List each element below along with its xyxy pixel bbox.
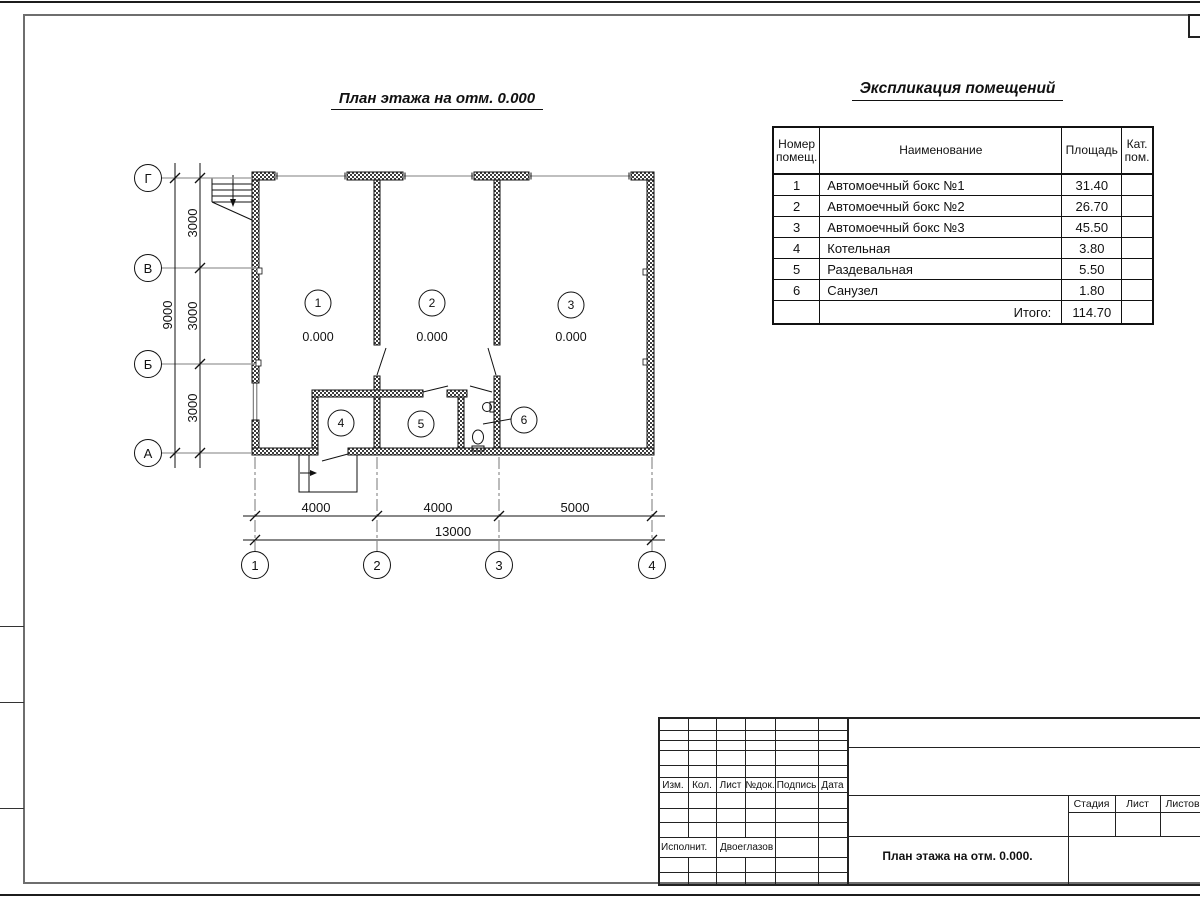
room-cat-cell bbox=[1122, 280, 1153, 301]
total-label: Итого: bbox=[820, 301, 1062, 325]
door-leaf bbox=[377, 348, 386, 375]
col-header-num: Номер помещ. bbox=[773, 127, 820, 174]
room-number: 1 bbox=[315, 296, 322, 310]
wall-axis-ticks bbox=[256, 268, 647, 366]
sanitary-fixtures bbox=[472, 402, 494, 451]
dimension-label: 13000 bbox=[435, 524, 471, 539]
partition-wall bbox=[494, 376, 500, 448]
dimension-label: 3000 bbox=[185, 394, 200, 423]
elevation-label: 0.000 bbox=[555, 330, 586, 344]
stair-direction-arrow bbox=[230, 199, 236, 207]
wall bbox=[347, 172, 403, 180]
entrance-arrow bbox=[310, 470, 317, 476]
room-name-cell: Раздевальная bbox=[820, 259, 1062, 280]
tb-col-kol: Кол. bbox=[688, 779, 716, 792]
room-cat-cell bbox=[1122, 196, 1153, 217]
room-num-cell: 3 bbox=[773, 217, 820, 238]
room-name-cell: Санузел bbox=[820, 280, 1062, 301]
room-bubbles bbox=[305, 290, 584, 437]
col-header-name: Наименование bbox=[820, 127, 1062, 174]
room-name-cell: Автомоечный бокс №1 bbox=[820, 174, 1062, 196]
total-value: 114.70 bbox=[1062, 301, 1122, 325]
room-number: 2 bbox=[429, 296, 436, 310]
axis-letter: В bbox=[144, 261, 153, 276]
wall bbox=[348, 448, 654, 455]
room-cat-cell bbox=[1122, 259, 1153, 280]
door-leaf bbox=[423, 386, 448, 392]
room-cat-cell bbox=[1122, 217, 1153, 238]
dimension-label: 5000 bbox=[561, 500, 590, 515]
room-name-cell: Котельная bbox=[820, 238, 1062, 259]
axis-bubbles-left bbox=[135, 165, 162, 467]
executor-label: Исполнит. bbox=[661, 841, 707, 854]
room-number: 4 bbox=[338, 416, 345, 430]
explication-table: Номер помещ. Наименование Площадь Кат. п… bbox=[772, 126, 1154, 325]
table-total-row: Итого: 114.70 bbox=[773, 301, 1153, 325]
room-num-cell: 2 bbox=[773, 196, 820, 217]
axis-letter: Г bbox=[144, 171, 151, 186]
room-name-cell: Автомоечный бокс №3 bbox=[820, 217, 1062, 238]
stamp-doc-title: План этажа на отм. 0.000. bbox=[847, 849, 1068, 863]
dimension-label: 3000 bbox=[185, 209, 200, 238]
room-area-cell: 5.50 bbox=[1062, 259, 1122, 280]
empty-cell bbox=[773, 301, 820, 325]
table-row: 1 Автомоечный бокс №1 31.40 bbox=[773, 174, 1153, 196]
axis-number: 1 bbox=[251, 558, 258, 573]
room-num-cell: 1 bbox=[773, 174, 820, 196]
axis-lines-left bbox=[162, 178, 258, 453]
room-number: 3 bbox=[568, 298, 575, 312]
axis-number: 2 bbox=[373, 558, 380, 573]
wall bbox=[252, 180, 259, 383]
axis-letter: А bbox=[144, 446, 153, 461]
partition-wall bbox=[312, 397, 318, 448]
room-area-cell: 26.70 bbox=[1062, 196, 1122, 217]
axis-bubbles-bottom bbox=[242, 552, 666, 579]
toilet bbox=[473, 430, 484, 444]
room-num-cell: 6 bbox=[773, 280, 820, 301]
entrance-porch bbox=[299, 455, 357, 492]
tb-col-ndok: №док. bbox=[745, 779, 775, 792]
door-leaf bbox=[322, 454, 348, 461]
exterior-stair bbox=[212, 175, 252, 220]
tb-col-podpis: Подпись bbox=[775, 779, 818, 792]
wall bbox=[631, 172, 654, 180]
room-area-cell: 31.40 bbox=[1062, 174, 1122, 196]
dimension-label: 9000 bbox=[160, 301, 175, 330]
wall bbox=[647, 180, 654, 448]
partition-wall bbox=[494, 180, 500, 345]
wall bbox=[252, 448, 318, 455]
tb-col-izm: Изм. bbox=[658, 779, 688, 792]
partition-wall bbox=[374, 376, 380, 448]
room-cat-cell bbox=[1122, 238, 1153, 259]
door-leaves bbox=[322, 348, 496, 461]
table-row: 5 Раздевальная 5.50 bbox=[773, 259, 1153, 280]
tb-col-list: Лист bbox=[716, 779, 745, 792]
partition-wall bbox=[312, 390, 423, 397]
door-leaf bbox=[488, 348, 496, 375]
table-row: 6 Санузел 1.80 bbox=[773, 280, 1153, 301]
elevation-label: 0.000 bbox=[416, 330, 447, 344]
tb-col-data: Дата bbox=[818, 779, 847, 792]
stage-label: Стадия bbox=[1068, 798, 1115, 811]
col-header-area: Площадь bbox=[1062, 127, 1122, 174]
room-num-cell: 4 bbox=[773, 238, 820, 259]
table-header-row: Номер помещ. Наименование Площадь Кат. п… bbox=[773, 127, 1153, 174]
axis-number: 3 bbox=[495, 558, 502, 573]
table-row: 3 Автомоечный бокс №3 45.50 bbox=[773, 217, 1153, 238]
dimension-label: 3000 bbox=[185, 302, 200, 331]
partition-wall bbox=[374, 180, 380, 345]
axis-number: 4 bbox=[648, 558, 655, 573]
elevation-label: 0.000 bbox=[302, 330, 333, 344]
room-number: 5 bbox=[418, 417, 425, 431]
room-num-cell: 5 bbox=[773, 259, 820, 280]
table-row: 4 Котельная 3.80 bbox=[773, 238, 1153, 259]
sheets-label: Листов bbox=[1160, 798, 1200, 811]
partition-wall bbox=[447, 390, 467, 397]
drawing-sheet: { "sheet": { "plan_title": "План этажа н… bbox=[0, 0, 1200, 900]
axis-letter: Б bbox=[144, 357, 153, 372]
room-cat-cell bbox=[1122, 174, 1153, 196]
wall bbox=[252, 172, 275, 180]
room-area-cell: 3.80 bbox=[1062, 238, 1122, 259]
dimension-label: 4000 bbox=[424, 500, 453, 515]
door-leaf bbox=[470, 386, 492, 392]
wall bbox=[252, 420, 259, 448]
wall bbox=[474, 172, 529, 180]
room-area-cell: 1.80 bbox=[1062, 280, 1122, 301]
window bbox=[252, 383, 259, 420]
room-area-cell: 45.50 bbox=[1062, 217, 1122, 238]
room-number: 6 bbox=[521, 413, 528, 427]
sheet-label: Лист bbox=[1115, 798, 1160, 811]
table-row: 2 Автомоечный бокс №2 26.70 bbox=[773, 196, 1153, 217]
col-header-cat: Кат. пом. bbox=[1122, 127, 1153, 174]
room-name-cell: Автомоечный бокс №2 bbox=[820, 196, 1062, 217]
partition-wall bbox=[458, 397, 464, 448]
empty-cell bbox=[1122, 301, 1153, 325]
dimension-label: 4000 bbox=[302, 500, 331, 515]
executor-name: Двоеглазов bbox=[720, 841, 773, 854]
